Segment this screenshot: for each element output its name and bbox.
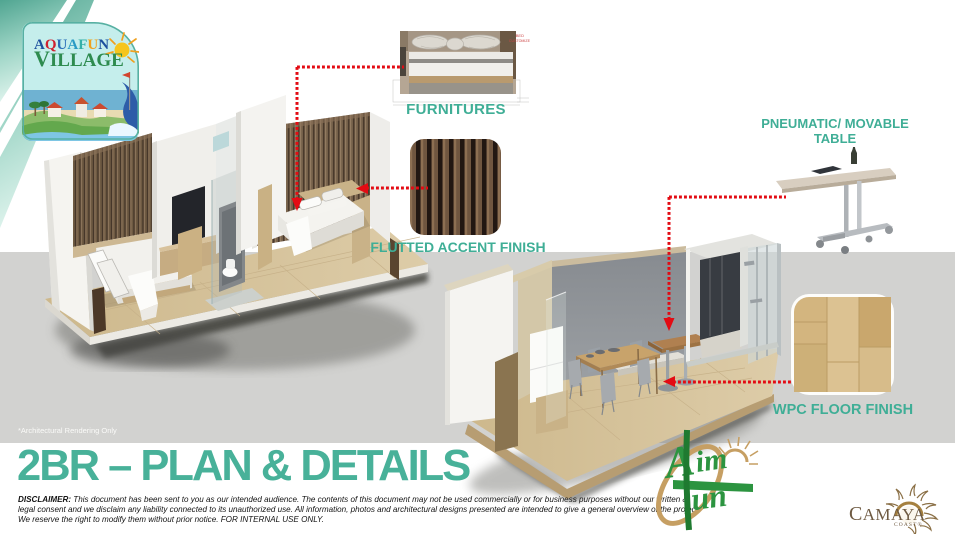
svg-text:un: un	[689, 477, 729, 518]
svg-text:COAST®: COAST®	[894, 521, 923, 528]
svg-text:im: im	[693, 442, 729, 479]
